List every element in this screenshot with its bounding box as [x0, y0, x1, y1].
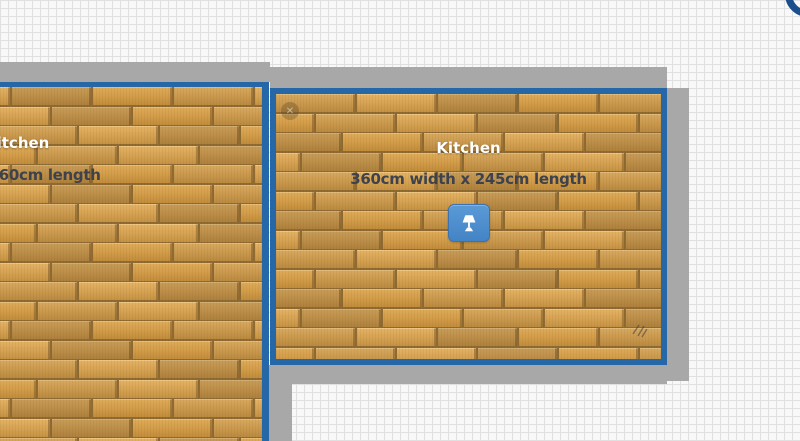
- lamp-button[interactable]: [448, 204, 490, 242]
- room-kitchen-left[interactable]: Kitchen 245cm width x 360cm length: [0, 82, 269, 441]
- close-icon[interactable]: ✕: [281, 102, 299, 120]
- brand-logo-arc-icon: [785, 0, 800, 17]
- wall-right[interactable]: [666, 88, 689, 381]
- room-name-label: Kitchen: [276, 139, 661, 157]
- resize-handle-icon[interactable]: [630, 320, 650, 340]
- room-dimensions-label: 245cm width x 360cm length: [0, 166, 101, 184]
- floorplan-canvas[interactable]: Kitchen 245cm width x 360cm length ✕ Kit…: [0, 0, 800, 441]
- room-dimensions-label: 360cm width x 245cm length: [276, 170, 661, 188]
- wall-bottom[interactable]: [270, 365, 667, 384]
- wall-top-left[interactable]: [0, 62, 270, 82]
- table-lamp-icon: [458, 212, 480, 234]
- wall-top-right[interactable]: [270, 67, 667, 88]
- room-name-label: Kitchen: [0, 134, 49, 152]
- wall-middle-lower[interactable]: [269, 365, 292, 441]
- room-kitchen-right[interactable]: ✕ Kitchen 360cm width x 245cm length: [270, 88, 667, 365]
